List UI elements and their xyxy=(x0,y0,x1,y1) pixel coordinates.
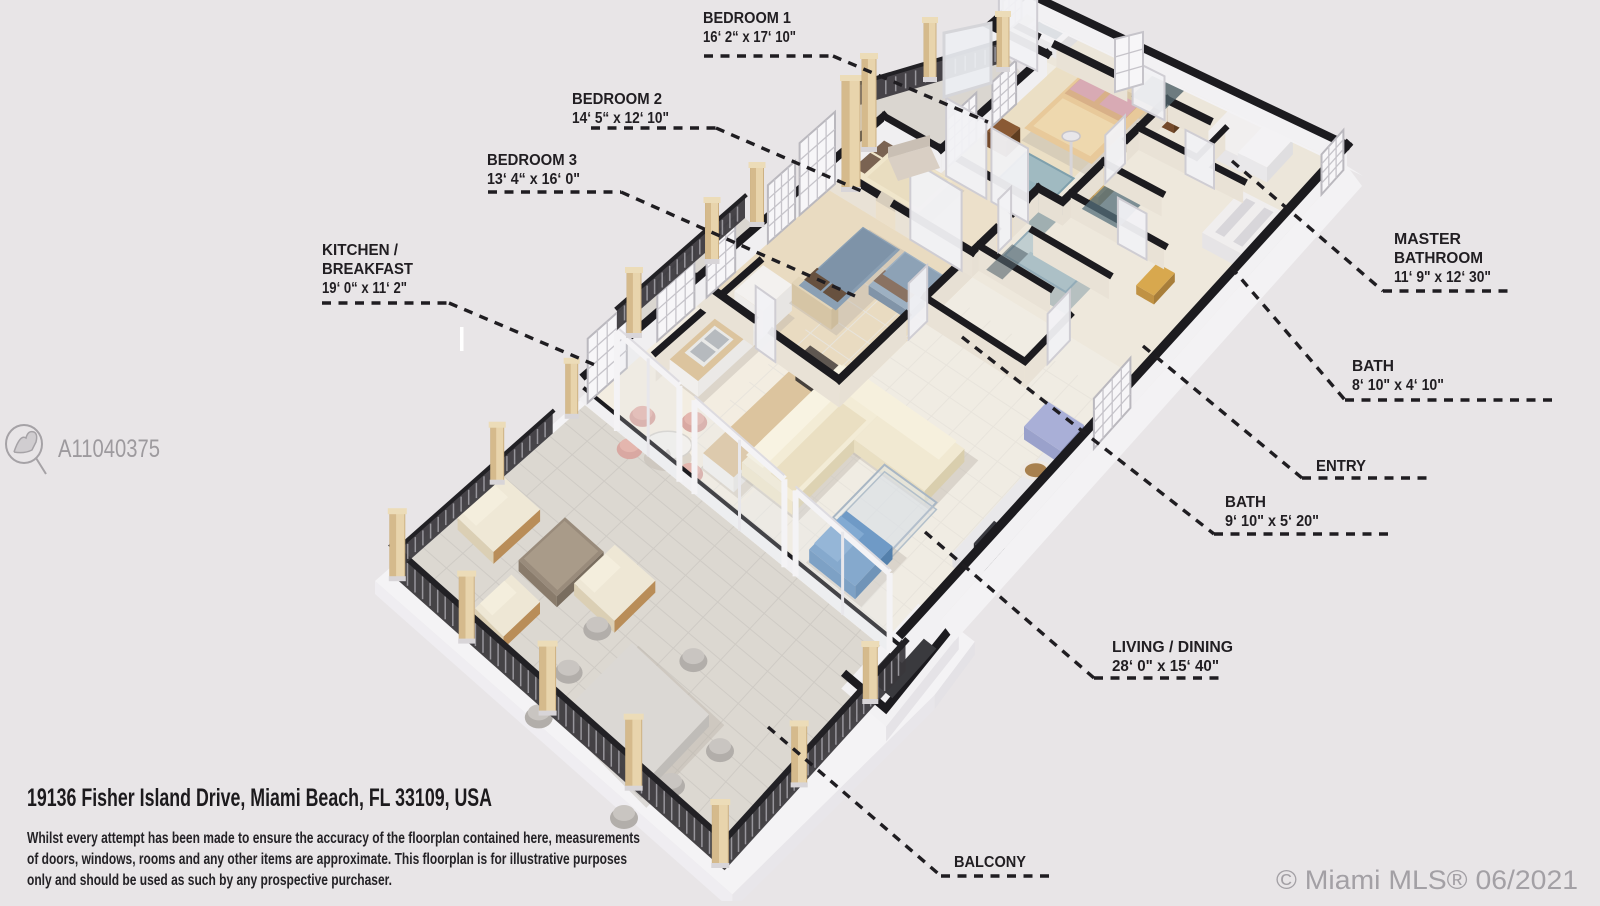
svg-text:MASTER: MASTER xyxy=(1394,231,1461,248)
svg-text:BALCONY: BALCONY xyxy=(954,854,1026,871)
svg-text:16‘ 2“ x 17‘ 10": 16‘ 2“ x 17‘ 10" xyxy=(703,29,796,46)
svg-text:19136 Fisher Island Drive, Mia: 19136 Fisher Island Drive, Miami Beach, … xyxy=(27,784,492,812)
svg-text:ENTRY: ENTRY xyxy=(1316,458,1366,475)
svg-text:BEDROOM 3: BEDROOM 3 xyxy=(487,152,577,169)
svg-text:BATH: BATH xyxy=(1225,494,1266,511)
svg-text:of doors, windows, rooms and a: of doors, windows, rooms and any other i… xyxy=(27,851,627,868)
svg-text:LIVING / DINING: LIVING / DINING xyxy=(1112,639,1233,656)
svg-text:28‘ 0" x 15‘ 40": 28‘ 0" x 15‘ 40" xyxy=(1112,658,1219,675)
svg-text:14‘ 5“ x 12‘ 10": 14‘ 5“ x 12‘ 10" xyxy=(572,110,669,127)
svg-text:BATHROOM: BATHROOM xyxy=(1394,250,1483,267)
svg-text:BEDROOM 1: BEDROOM 1 xyxy=(703,10,791,27)
svg-text:Whilst every attempt has been: Whilst every attempt has been made to en… xyxy=(27,830,640,847)
svg-text:9‘ 10" x 5‘ 20": 9‘ 10" x 5‘ 20" xyxy=(1225,513,1319,530)
svg-text:13‘ 4“ x 16‘ 0": 13‘ 4“ x 16‘ 0" xyxy=(487,171,580,188)
svg-text:BATH: BATH xyxy=(1352,358,1394,375)
svg-text:8‘ 10" x 4‘ 10": 8‘ 10" x 4‘ 10" xyxy=(1352,377,1444,394)
svg-text:A11040375: A11040375 xyxy=(58,435,160,463)
svg-text:BREAKFAST: BREAKFAST xyxy=(322,261,413,278)
svg-text:11‘ 9" x 12‘ 30": 11‘ 9" x 12‘ 30" xyxy=(1394,269,1491,286)
svg-text:BEDROOM 2: BEDROOM 2 xyxy=(572,91,662,108)
svg-text:only and should be used as suc: only and should be used as such by any p… xyxy=(27,872,392,889)
svg-text:© Miami MLS® 06/2021: © Miami MLS® 06/2021 xyxy=(1276,865,1578,895)
svg-text:KITCHEN /: KITCHEN / xyxy=(322,242,399,259)
svg-text:19‘ 0“ x 11‘ 2": 19‘ 0“ x 11‘ 2" xyxy=(322,280,407,297)
